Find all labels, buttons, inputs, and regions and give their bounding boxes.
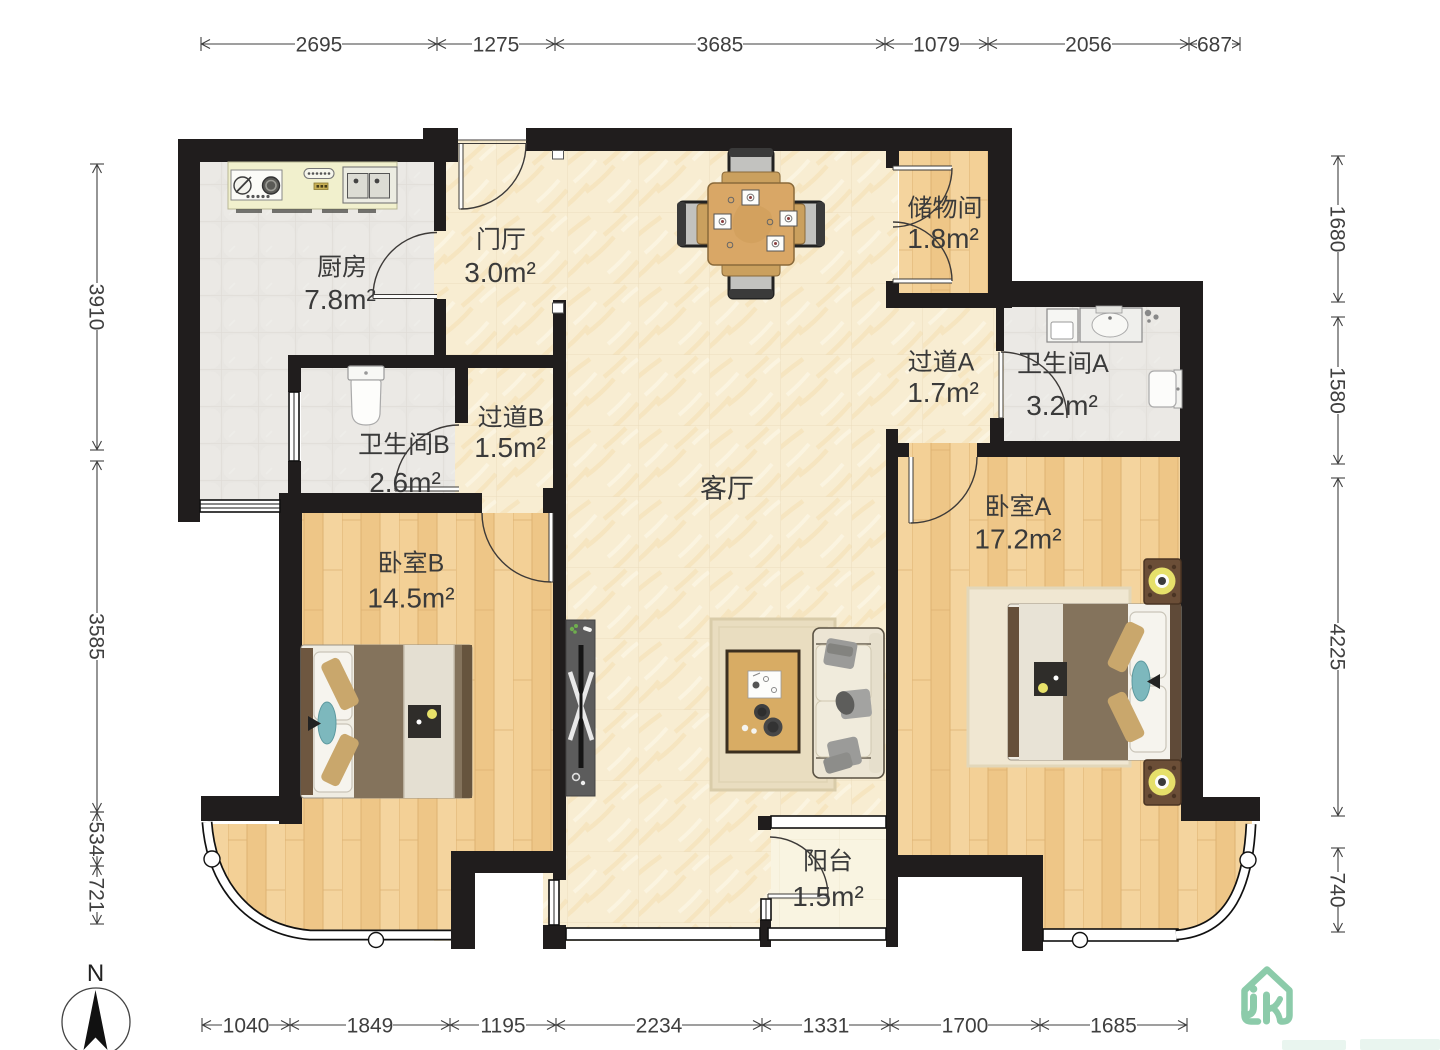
svg-text:2234: 2234 xyxy=(636,1014,683,1037)
svg-text:740: 740 xyxy=(1326,872,1349,907)
svg-text:1680: 1680 xyxy=(1326,206,1349,253)
svg-text:687: 687 xyxy=(1197,33,1232,56)
svg-text:1700: 1700 xyxy=(942,1014,989,1037)
svg-text:3685: 3685 xyxy=(697,33,744,56)
svg-text:1.7m²: 1.7m² xyxy=(907,377,979,408)
svg-text:1040: 1040 xyxy=(223,1014,270,1037)
svg-text:534: 534 xyxy=(85,821,108,856)
svg-text:2056: 2056 xyxy=(1065,33,1112,56)
svg-text:3.2m²: 3.2m² xyxy=(1026,390,1098,421)
svg-text:1195: 1195 xyxy=(480,1014,525,1037)
svg-text:A: A xyxy=(1092,350,1109,378)
svg-text:3910: 3910 xyxy=(85,284,108,331)
svg-text:B: B xyxy=(528,404,545,432)
svg-text:B: B xyxy=(433,431,450,459)
svg-text:1849: 1849 xyxy=(347,1014,394,1037)
svg-text:2695: 2695 xyxy=(296,33,343,56)
svg-text:N: N xyxy=(87,960,104,987)
svg-text:1580: 1580 xyxy=(1326,367,1349,414)
svg-text:1.8m²: 1.8m² xyxy=(907,223,979,254)
svg-text:14.5m²: 14.5m² xyxy=(367,582,454,613)
svg-text:3.0m²: 3.0m² xyxy=(464,257,536,288)
svg-text:4225: 4225 xyxy=(1326,624,1349,671)
svg-text:1275: 1275 xyxy=(473,33,520,56)
svg-text:721: 721 xyxy=(85,877,108,912)
svg-text:B: B xyxy=(428,550,445,578)
svg-text:1331: 1331 xyxy=(803,1014,850,1037)
svg-text:17.2m²: 17.2m² xyxy=(974,523,1061,554)
svg-text:1.5m²: 1.5m² xyxy=(474,432,546,463)
svg-text:A: A xyxy=(958,349,975,377)
svg-text:2.6m²: 2.6m² xyxy=(369,467,441,498)
svg-text:7.8m²: 7.8m² xyxy=(304,284,376,315)
svg-text:3585: 3585 xyxy=(85,613,108,660)
svg-text:A: A xyxy=(1035,493,1052,521)
svg-text:1.5m²: 1.5m² xyxy=(792,881,864,912)
svg-text:1079: 1079 xyxy=(913,33,960,56)
svg-text:1685: 1685 xyxy=(1090,1014,1137,1037)
